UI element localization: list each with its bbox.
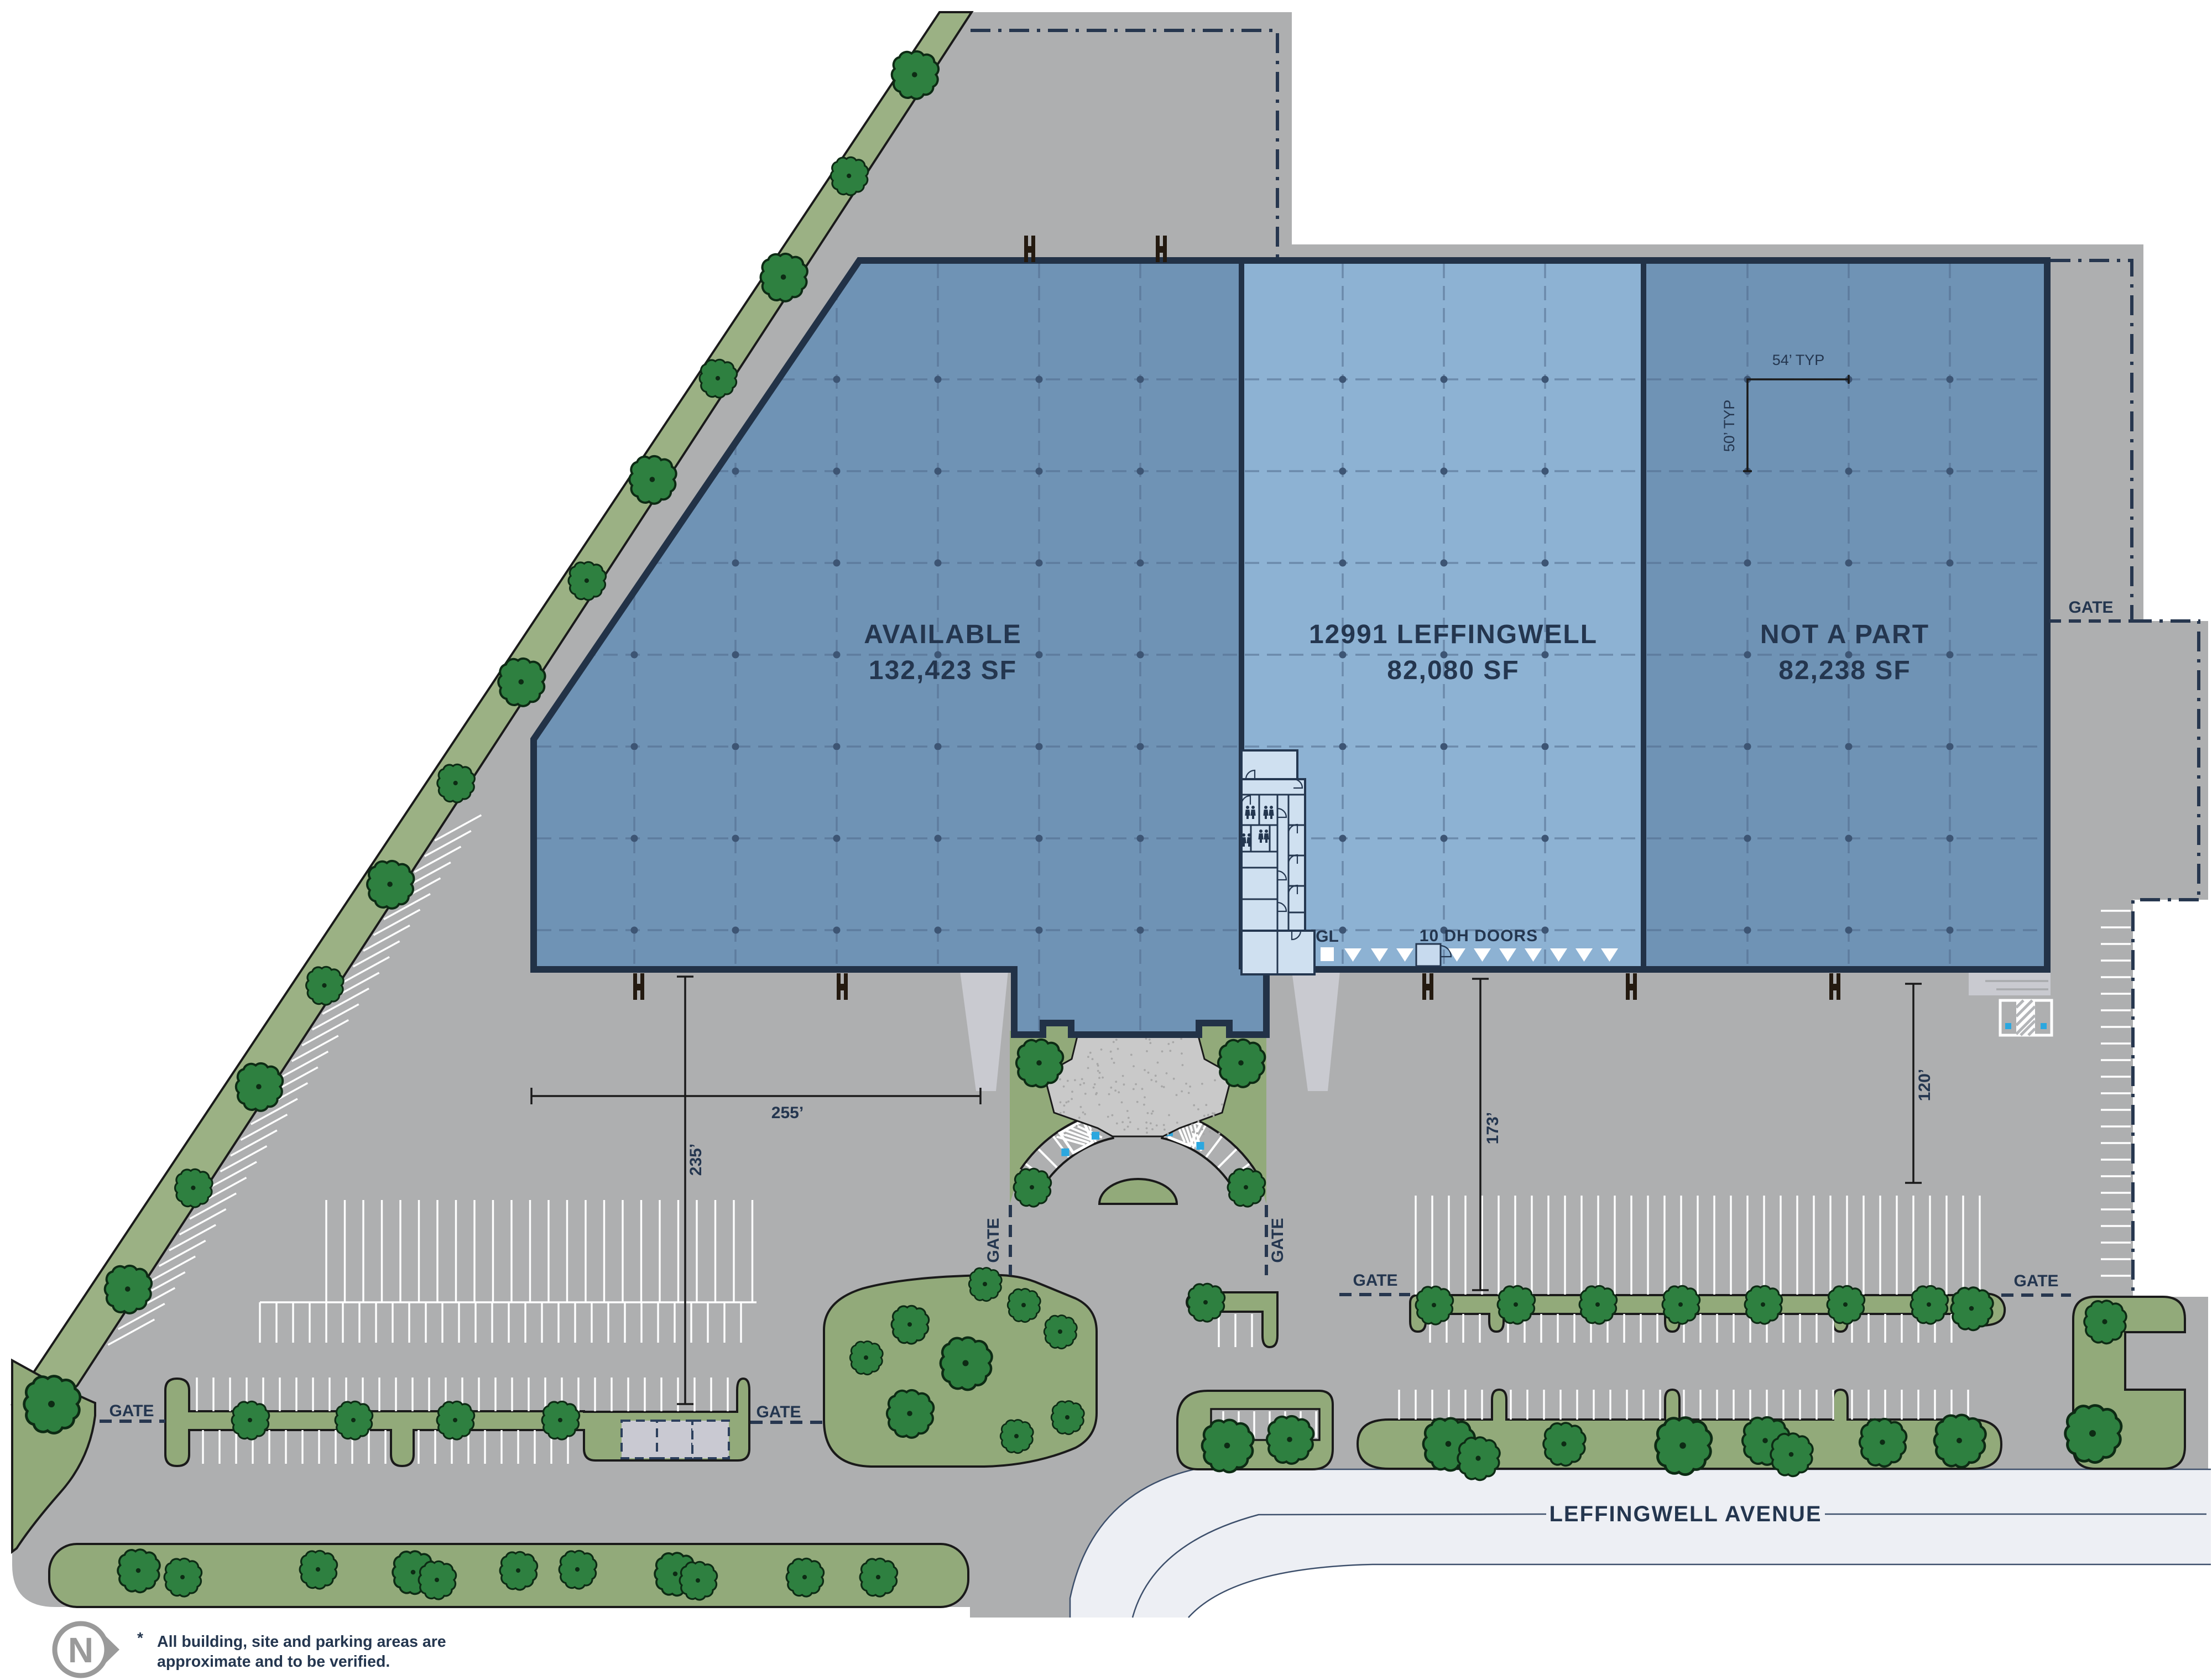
- svg-text:255’: 255’: [771, 1104, 804, 1122]
- svg-text:173’: 173’: [1484, 1112, 1502, 1144]
- svg-text:GATE: GATE: [756, 1403, 801, 1421]
- svg-text:GL: GL: [1316, 927, 1339, 946]
- svg-text:All building, site and parking: All building, site and parking areas are: [157, 1633, 446, 1651]
- svg-text:GATE: GATE: [1269, 1218, 1287, 1262]
- svg-text:LEFFINGWELL AVENUE: LEFFINGWELL AVENUE: [1549, 1502, 1822, 1526]
- svg-text:132,423 SF: 132,423 SF: [869, 656, 1017, 685]
- svg-text:GATE: GATE: [2013, 1272, 2058, 1290]
- svg-text:GATE: GATE: [2068, 598, 2113, 617]
- svg-text:N: N: [68, 1630, 93, 1670]
- svg-text:235’: 235’: [687, 1144, 705, 1176]
- svg-text:54’ TYP: 54’ TYP: [1772, 352, 1825, 368]
- svg-text:82,080 SF: 82,080 SF: [1387, 656, 1519, 685]
- svg-text:AVAILABLE: AVAILABLE: [864, 620, 1022, 649]
- svg-text:approximate and to be verified: approximate and to be verified.: [157, 1653, 390, 1671]
- svg-text:GATE: GATE: [984, 1218, 1003, 1262]
- svg-text:120’: 120’: [1916, 1069, 1934, 1101]
- svg-text:*: *: [137, 1629, 143, 1646]
- svg-text:NOT A PART: NOT A PART: [1760, 620, 1929, 649]
- svg-text:GATE: GATE: [109, 1402, 154, 1420]
- svg-text:50’ TYP: 50’ TYP: [1721, 400, 1738, 452]
- svg-text:12991 LEFFINGWELL: 12991 LEFFINGWELL: [1309, 620, 1598, 649]
- svg-text:10 DH DOORS: 10 DH DOORS: [1420, 927, 1538, 945]
- svg-text:GATE: GATE: [1353, 1271, 1397, 1290]
- svg-text:82,238 SF: 82,238 SF: [1778, 656, 1911, 685]
